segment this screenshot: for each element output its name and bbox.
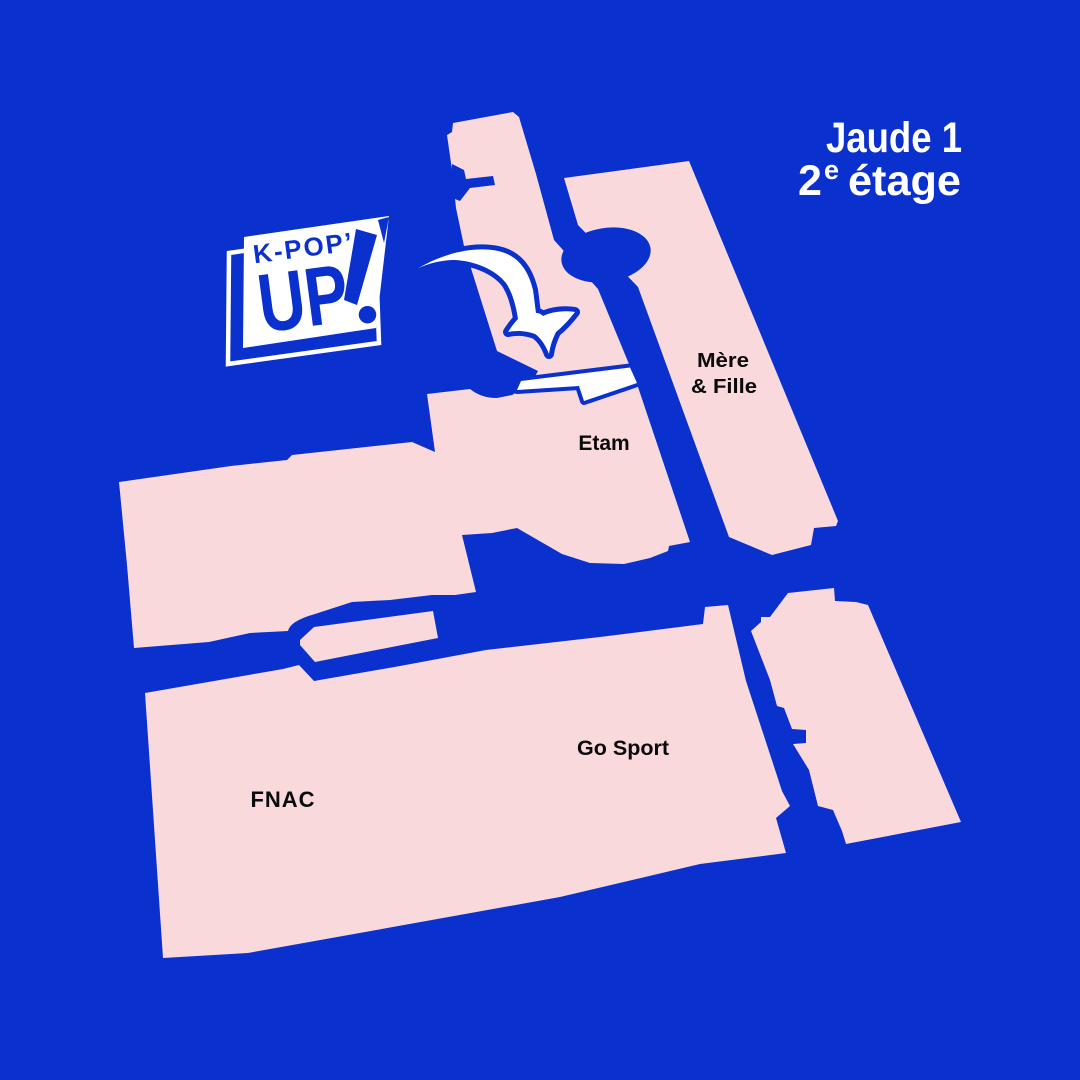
svg-text:UP: UP (252, 246, 353, 350)
svg-text:FNAC: FNAC (250, 787, 315, 812)
svg-text:Jaude 1: Jaude 1 (826, 114, 962, 162)
svg-text:Etam: Etam (578, 432, 629, 455)
svg-text:étage: étage (848, 157, 961, 205)
svg-text:2: 2 (798, 157, 822, 205)
svg-text:Mère: Mère (697, 350, 749, 372)
svg-text:Go Sport: Go Sport (577, 737, 669, 760)
svg-text:e: e (824, 155, 839, 185)
svg-text:& Fille: & Fille (691, 376, 757, 398)
